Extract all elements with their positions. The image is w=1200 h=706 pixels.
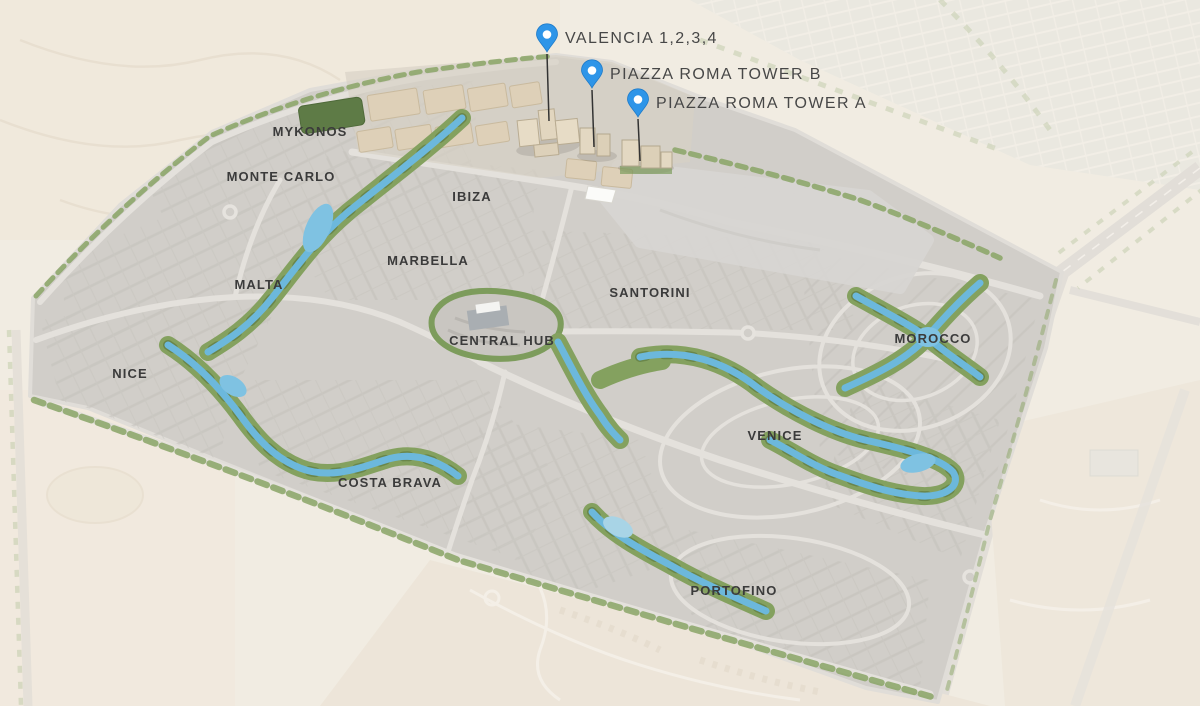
master-plan-map: MYKONOS MONTE CARLO IBIZA MARBELLA MALTA…	[0, 0, 1200, 706]
pin-hole	[543, 30, 552, 39]
district-label-mykonos: MYKONOS	[273, 124, 348, 139]
warehouse-building	[1090, 450, 1138, 476]
district-label-central-hub: CENTRAL HUB	[449, 333, 555, 348]
sand-feature	[47, 467, 143, 523]
district-label-morocco: MOROCCO	[894, 331, 971, 346]
district-label-ibiza: IBIZA	[452, 189, 491, 204]
district-label-costa-brava: COSTA BRAVA	[338, 475, 442, 490]
district-label-portofino: PORTOFINO	[691, 583, 778, 598]
pin-hole	[634, 95, 643, 104]
district-label-marbella: MARBELLA	[387, 253, 469, 268]
district-label-monte-carlo: MONTE CARLO	[227, 169, 336, 184]
pin-label-piazza-roma-tower-a: PIAZZA ROMA TOWER A	[656, 95, 867, 112]
district-label-santorini: SANTORINI	[609, 285, 690, 300]
map-canvas: MYKONOS MONTE CARLO IBIZA MARBELLA MALTA…	[0, 0, 1200, 706]
pin-hole	[588, 66, 597, 75]
central-hub-feature	[432, 291, 561, 359]
district-label-malta: MALTA	[234, 277, 283, 292]
district-label-nice: NICE	[112, 366, 147, 381]
pin-label-piazza-roma-tower-b: PIAZZA ROMA TOWER B	[610, 66, 822, 83]
pin-label-valencia: VALENCIA 1,2,3,4	[565, 30, 718, 47]
district-label-venice: VENICE	[747, 428, 802, 443]
